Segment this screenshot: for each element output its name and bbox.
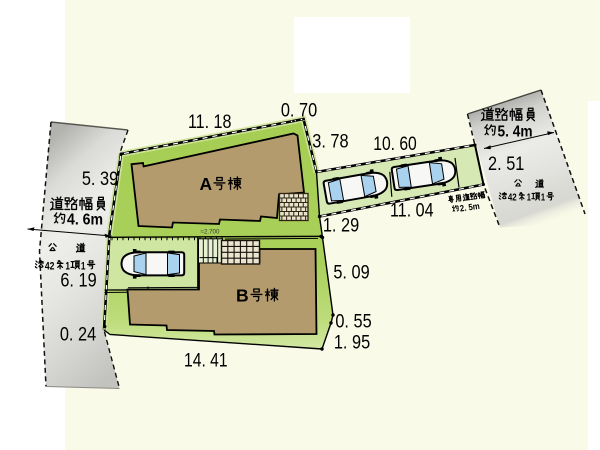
svg-text:B: B xyxy=(236,285,249,305)
svg-text:5. 09: 5. 09 xyxy=(333,262,369,284)
svg-text:0. 70: 0. 70 xyxy=(281,100,317,122)
svg-text:42: 42 xyxy=(45,260,55,272)
svg-text:≈2.700: ≈2.700 xyxy=(201,229,220,236)
svg-text:0. 24: 0. 24 xyxy=(60,324,96,346)
svg-text:A: A xyxy=(200,174,213,194)
svg-text:4. 6m: 4. 6m xyxy=(67,211,103,228)
svg-text:3. 78: 3. 78 xyxy=(312,131,348,153)
svg-text:11. 18: 11. 18 xyxy=(188,111,232,133)
svg-text:1. 95: 1. 95 xyxy=(334,332,370,354)
svg-text:2. 51: 2. 51 xyxy=(488,153,524,175)
svg-text:14. 41: 14. 41 xyxy=(184,350,228,372)
svg-text:1: 1 xyxy=(527,192,532,203)
svg-text:11. 04: 11. 04 xyxy=(390,200,434,222)
svg-text:5. 4m: 5. 4m xyxy=(498,123,533,140)
svg-text:1: 1 xyxy=(65,260,70,272)
svg-text:42: 42 xyxy=(508,192,517,203)
svg-text:1: 1 xyxy=(541,192,546,203)
svg-text:0. 55: 0. 55 xyxy=(335,311,371,333)
svg-text:5. 39: 5. 39 xyxy=(82,168,118,190)
svg-text:1: 1 xyxy=(81,260,86,272)
svg-text:6. 19: 6. 19 xyxy=(60,270,96,292)
svg-text:10. 60: 10. 60 xyxy=(373,133,417,155)
svg-text:1. 29: 1. 29 xyxy=(323,215,359,237)
